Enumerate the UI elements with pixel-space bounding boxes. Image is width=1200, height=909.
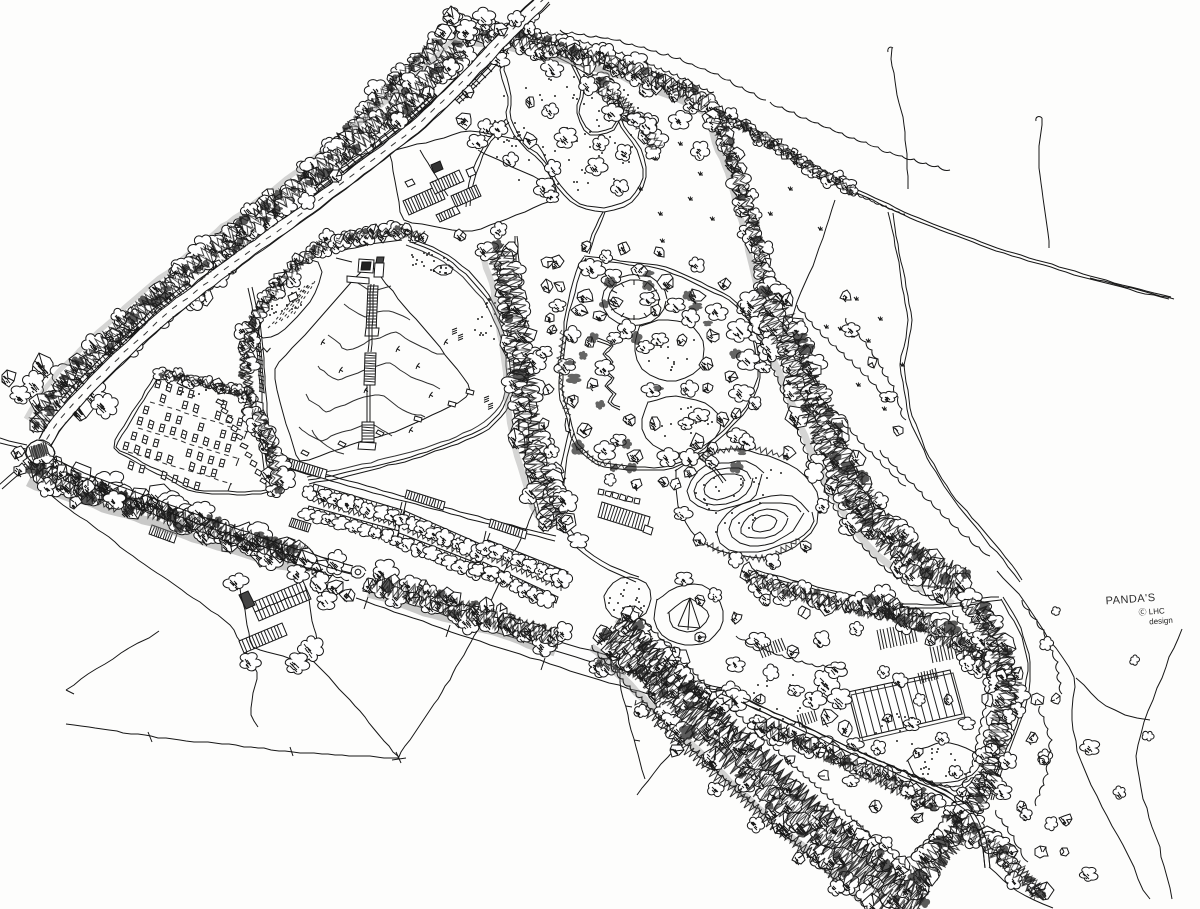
svg-text:design: design <box>1149 616 1173 627</box>
svg-text:Ⓒ LHC: Ⓒ LHC <box>1138 606 1165 617</box>
